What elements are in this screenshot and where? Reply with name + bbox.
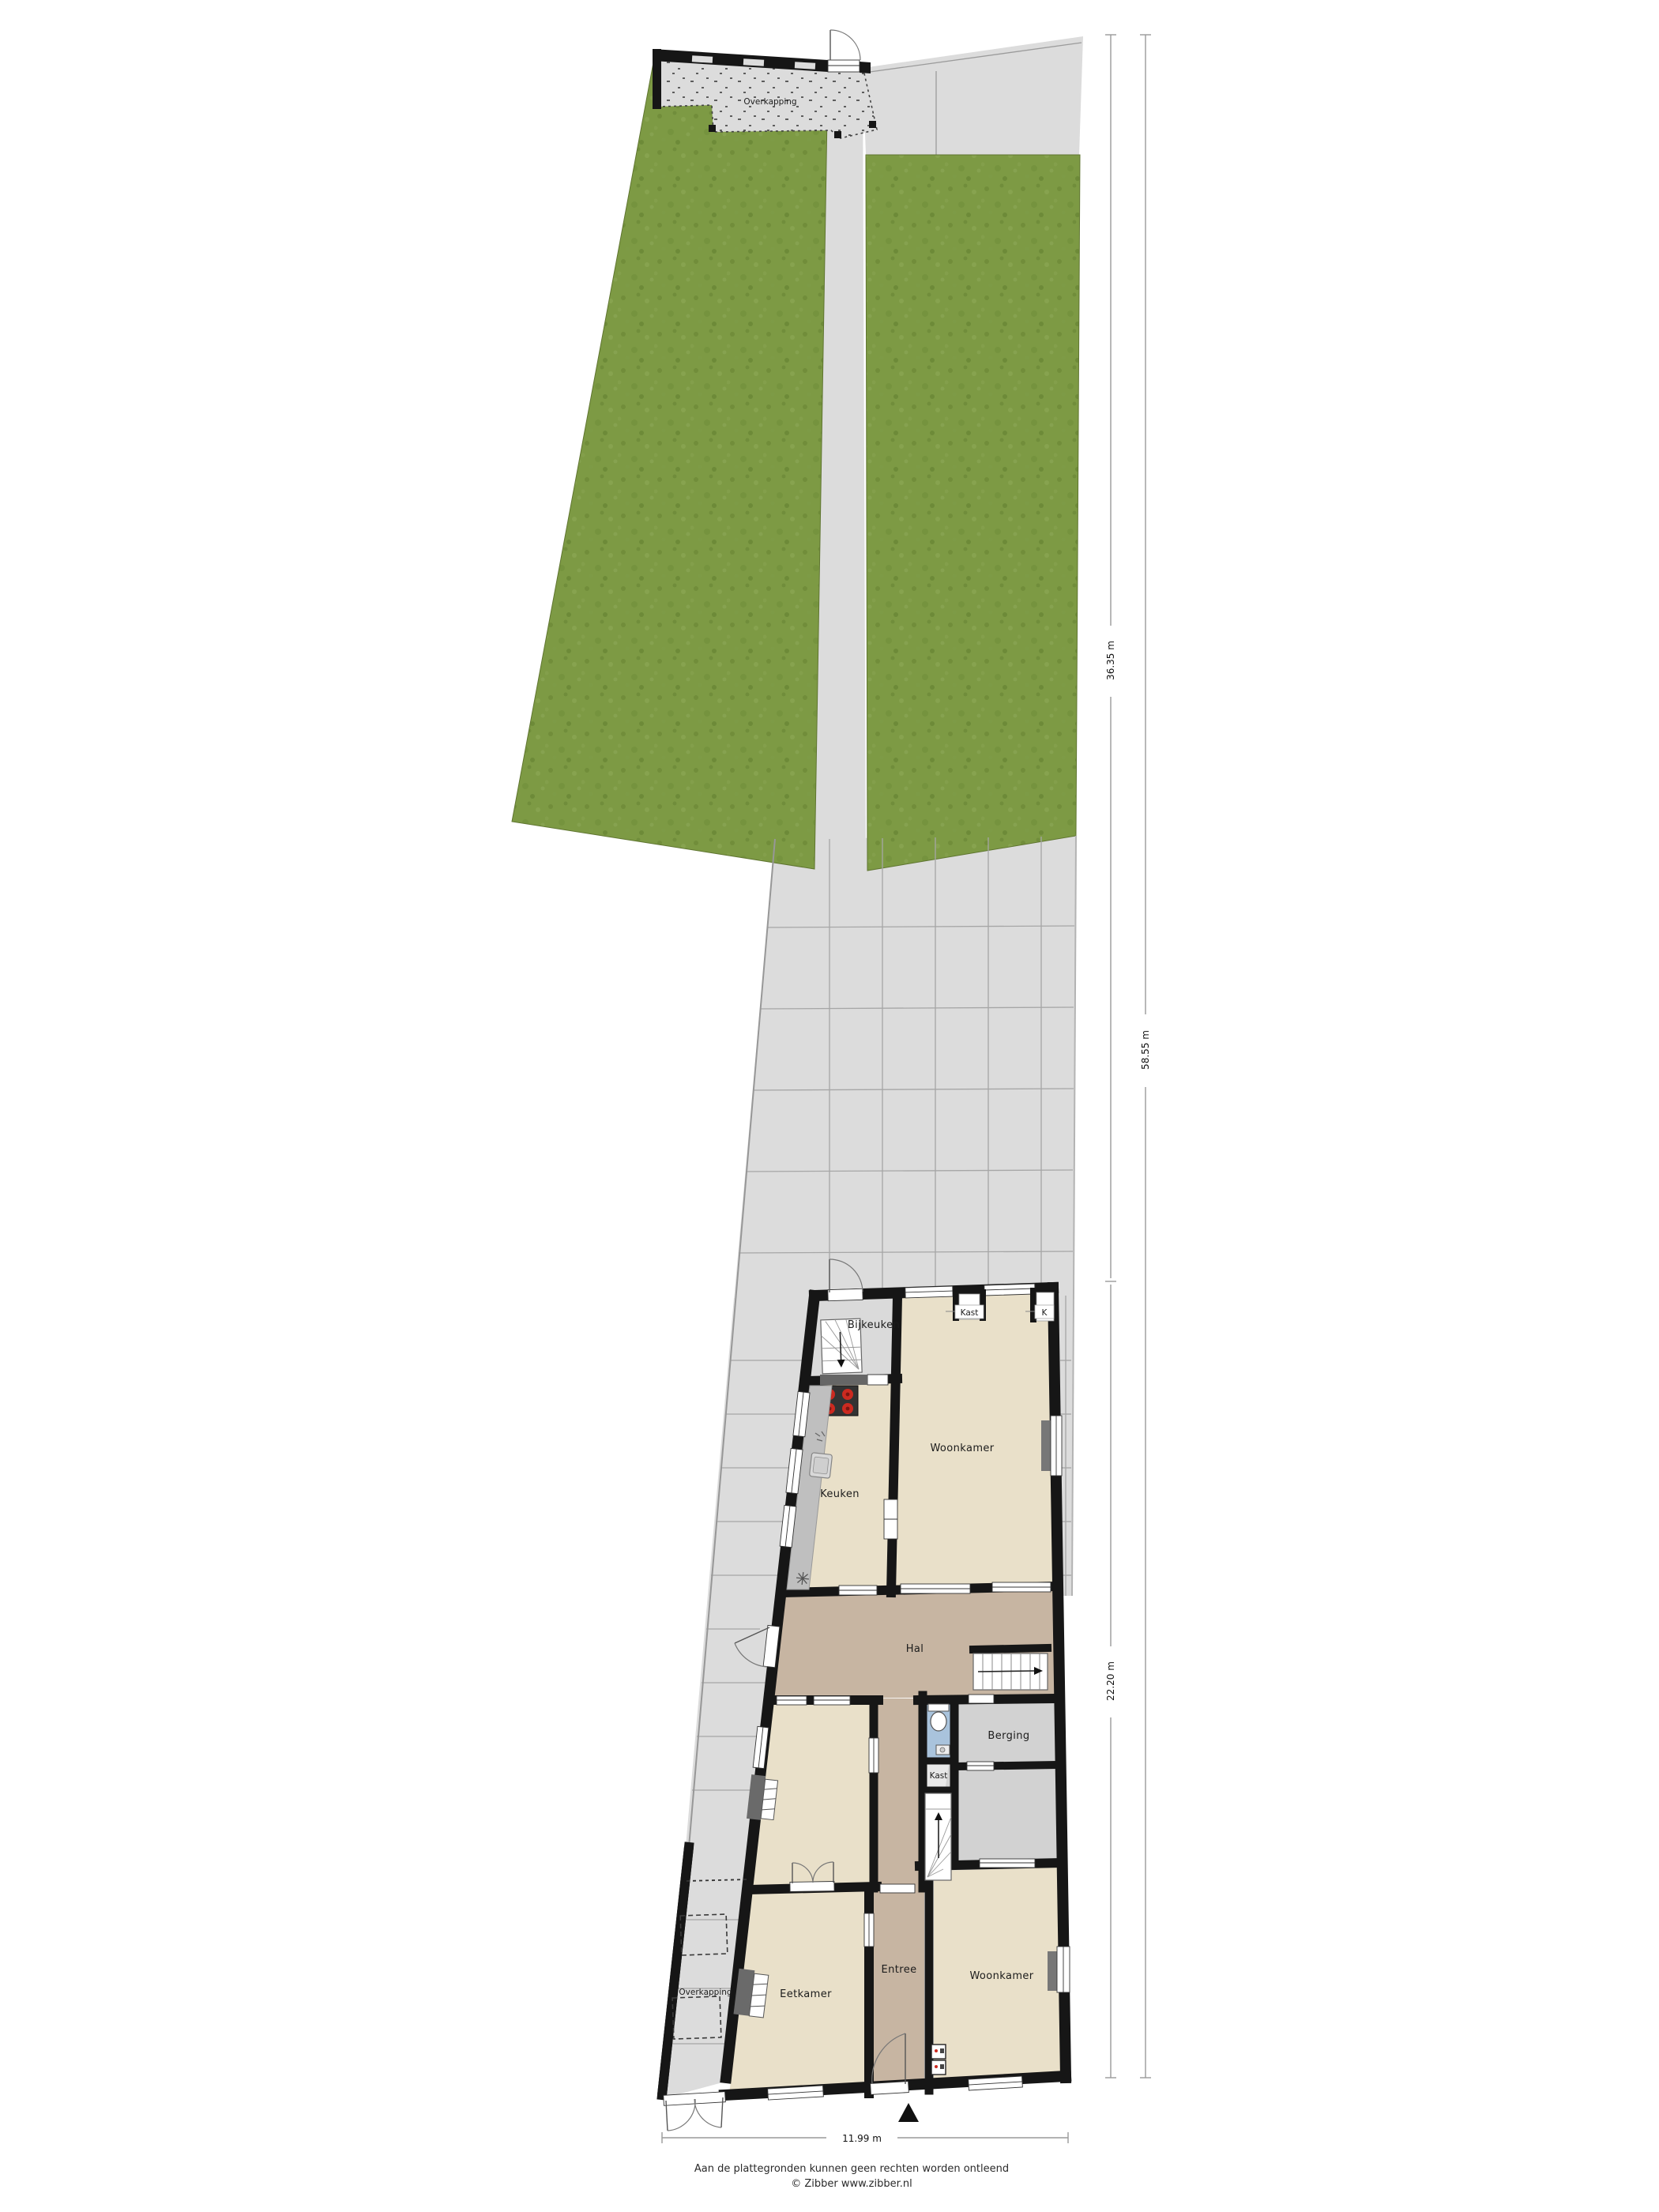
top-right-paving bbox=[863, 36, 1083, 155]
passage-double-door bbox=[664, 2092, 726, 2131]
window-hal-top-1 bbox=[839, 1586, 877, 1595]
window-hal-top-3 bbox=[992, 1582, 1051, 1592]
kitchen-counter-top bbox=[820, 1375, 867, 1385]
bijkeuken-keuken-door bbox=[867, 1375, 888, 1385]
kitchen-sink-icon bbox=[809, 1453, 832, 1479]
window-berging-bottom bbox=[980, 1859, 1035, 1868]
floorplan-page: Overkapping bbox=[0, 0, 1659, 2212]
dim-house-depth: 22.20 m bbox=[1105, 1661, 1116, 1701]
closet-top-label: Kast bbox=[961, 1308, 979, 1318]
window-middle-top-2 bbox=[814, 1696, 850, 1705]
berging-divider-opening bbox=[967, 1762, 994, 1770]
floorplan-drawing: Overkapping bbox=[0, 0, 1659, 2212]
room-entree bbox=[874, 1888, 924, 2092]
woonkamer-bottom-label: Woonkamer bbox=[969, 1970, 1033, 1982]
hal-label: Hal bbox=[906, 1643, 924, 1655]
toilet-sink-icon bbox=[936, 1745, 950, 1755]
corridor-entree-opening bbox=[880, 1884, 915, 1893]
bijkeuken-label: Bijkeuken bbox=[848, 1319, 900, 1331]
canopy-top-label: Overkapping bbox=[743, 97, 796, 107]
footer-credit: © Zibber www.zibber.nl bbox=[791, 2178, 912, 2190]
canopy-side-label: Overkapping bbox=[679, 1988, 732, 1997]
keuken-label: Keuken bbox=[820, 1488, 860, 1500]
dim-garden-depth: 36.35 m bbox=[1105, 641, 1116, 680]
stairs-cellar bbox=[925, 1793, 951, 1880]
dim-house-width: 11.99 m bbox=[842, 2133, 882, 2144]
room-woonkamer-top bbox=[888, 1292, 1053, 1591]
window-hal-top-2 bbox=[901, 1584, 970, 1593]
entree-label: Entree bbox=[881, 1964, 916, 1976]
fireplace-eetkamer bbox=[733, 1969, 769, 2018]
closet-top-right-label: K bbox=[1042, 1308, 1048, 1318]
hal-corridor bbox=[876, 1698, 920, 1890]
window-woonkamer-top-right bbox=[1041, 1416, 1062, 1476]
terrace-mid bbox=[734, 836, 1076, 1300]
window-middle-top-1 bbox=[777, 1696, 807, 1705]
garden-left bbox=[512, 58, 828, 869]
stairs-hal bbox=[973, 1648, 1048, 1690]
canopy-gate-door bbox=[828, 30, 860, 72]
berging-label: Berging bbox=[987, 1730, 1029, 1742]
berging-door bbox=[969, 1695, 994, 1703]
window-middle-right bbox=[869, 1738, 878, 1773]
window-woonkamer-bottom-right bbox=[1048, 1947, 1070, 1992]
window-top-1 bbox=[905, 1286, 953, 1298]
entree-glass-panel bbox=[864, 1913, 874, 1947]
garden-right bbox=[866, 155, 1080, 871]
fireplace-middle-room bbox=[747, 1774, 778, 1821]
woonkamer-top-label: Woonkamer bbox=[930, 1443, 994, 1454]
footer-disclaimer: Aan de plattegronden kunnen geen rechten… bbox=[694, 2163, 1009, 2175]
kast-mid-label: Kast bbox=[930, 1771, 948, 1781]
window-top-2 bbox=[984, 1284, 1035, 1296]
north-arrow-icon bbox=[898, 2103, 919, 2122]
eetkamer-label: Eetkamer bbox=[780, 1988, 832, 2000]
dim-total-depth: 58.55 m bbox=[1140, 1030, 1151, 1070]
